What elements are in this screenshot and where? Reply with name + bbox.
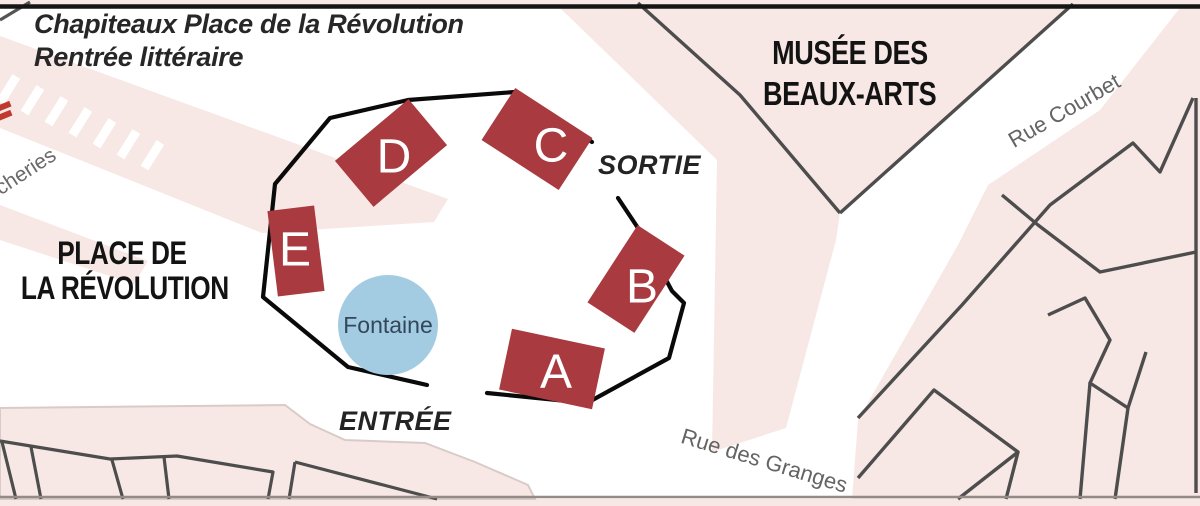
musee-label-line1: MUSÉE DES <box>772 32 928 73</box>
musee-des-beaux-arts-label: MUSÉE DES BEAUX-ARTS <box>742 32 957 114</box>
tent-E-letter: E <box>279 224 311 277</box>
fountain: Fontaine <box>338 275 438 375</box>
bottom-margin-strip <box>0 499 1200 506</box>
tent-B-letter: B <box>626 261 658 314</box>
place-label-line2: LA RÉVOLUTION <box>21 271 229 306</box>
tent-D-letter: D <box>377 131 412 184</box>
musee-label-line2: BEAUX-ARTS <box>763 73 936 114</box>
exit-label: SORTIE <box>598 150 701 181</box>
entrance-label: ENTRÉE <box>339 406 452 437</box>
top-margin-strip <box>0 0 1200 5</box>
place-label-line1: PLACE DE <box>57 236 186 271</box>
event-enclosure <box>263 92 684 403</box>
map-title: Chapiteaux Place de la Révolution Rentré… <box>34 8 464 74</box>
fountain-label: Fontaine <box>343 312 433 338</box>
map-title-line1: Chapiteaux Place de la Révolution <box>34 8 464 41</box>
tent-A-letter: A <box>540 346 572 399</box>
event-map: A B C D E Fontaine Chapiteaux Place de l… <box>0 0 1200 506</box>
block-bottom-left <box>0 405 535 499</box>
place-de-la-revolution-label: PLACE DE LA RÉVOLUTION <box>0 236 246 306</box>
tent-C-letter: C <box>534 120 569 173</box>
tents: A B C D E <box>267 88 684 409</box>
map-title-line2: Rentrée littéraire <box>34 41 464 74</box>
